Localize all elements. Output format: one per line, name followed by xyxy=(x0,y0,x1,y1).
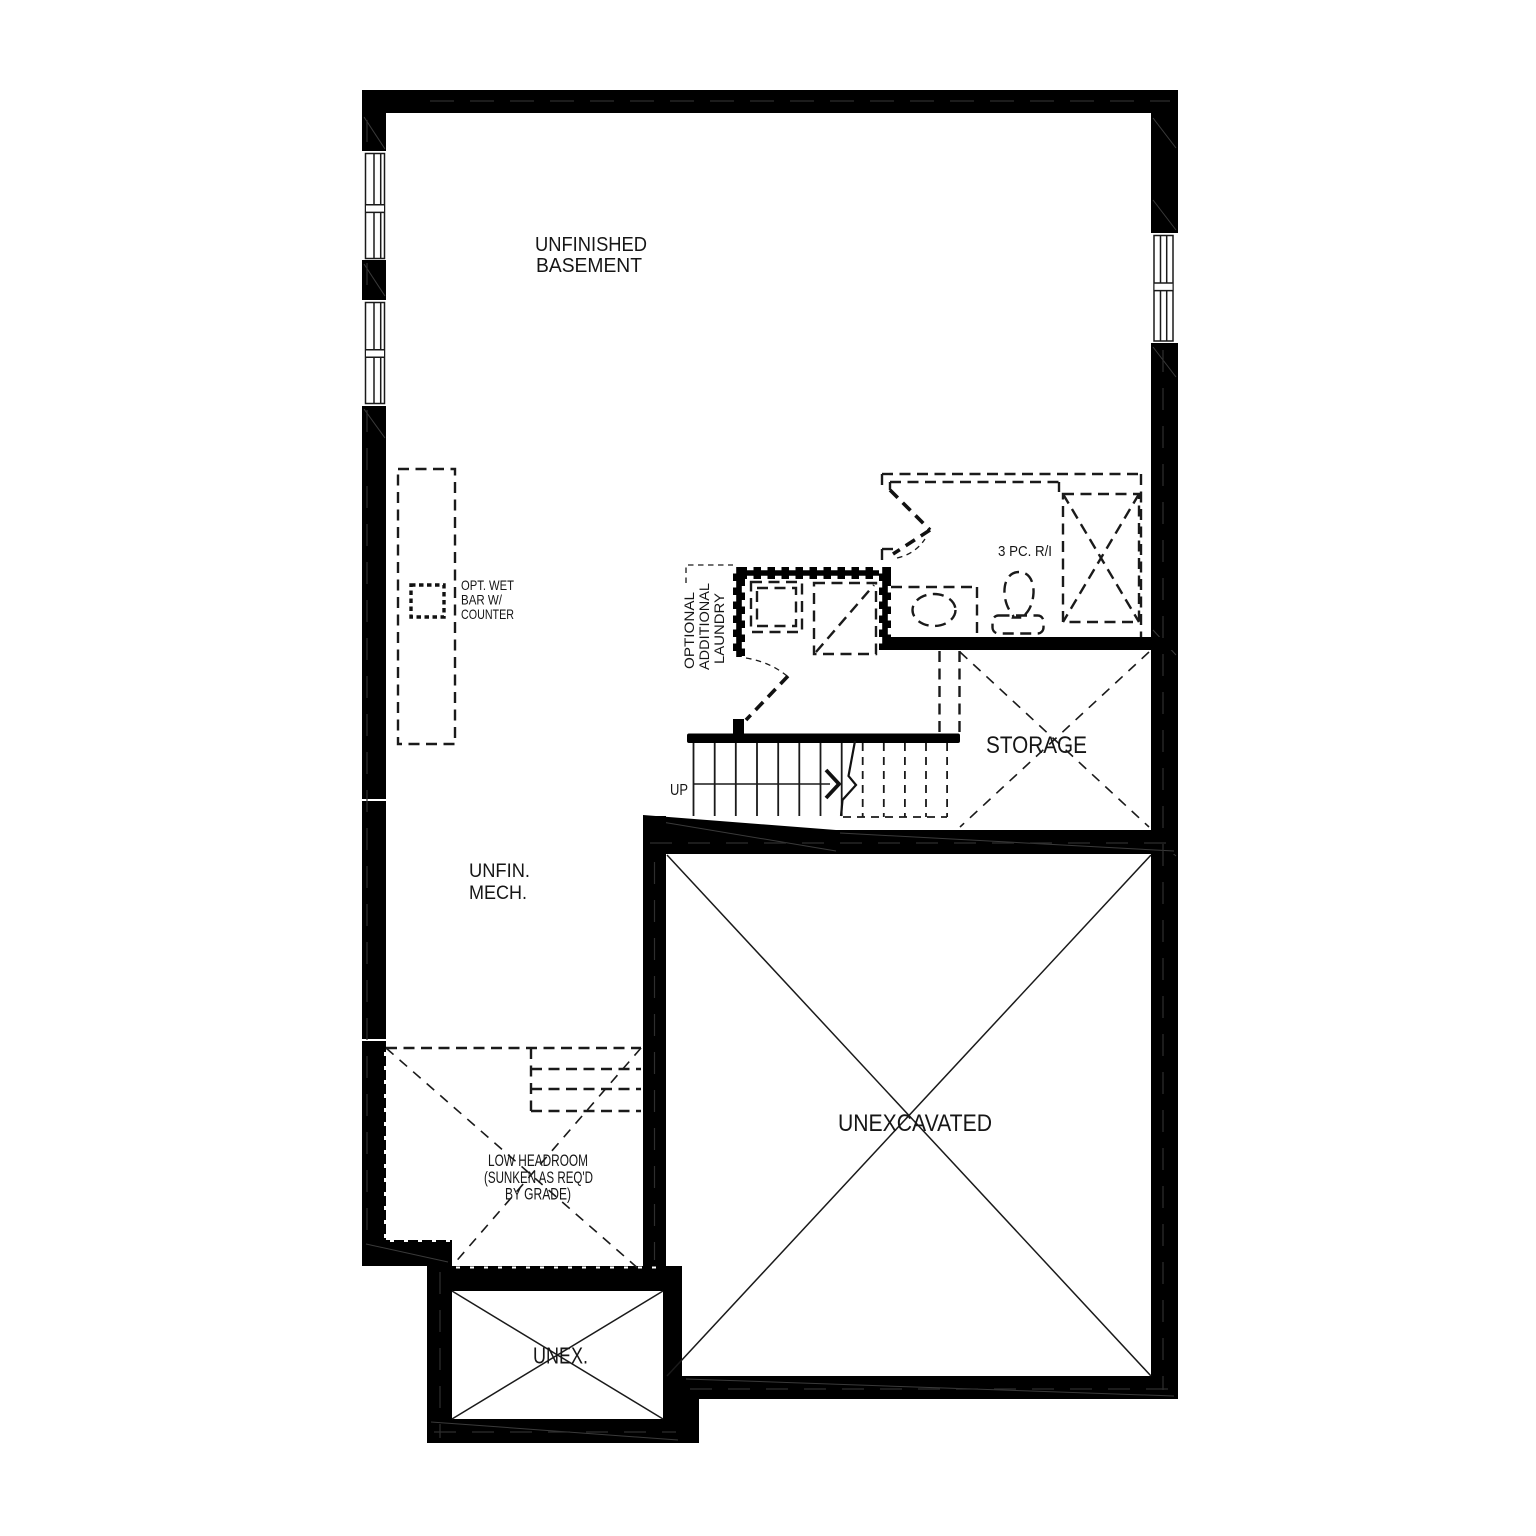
svg-text:UP: UP xyxy=(670,782,688,799)
svg-text:MECH.: MECH. xyxy=(469,883,527,904)
svg-text:(SUNKEN AS REQ'D: (SUNKEN AS REQ'D xyxy=(484,1169,593,1187)
svg-text:OPTIONAL: OPTIONAL xyxy=(681,592,697,669)
svg-text:UNFINISHED: UNFINISHED xyxy=(535,233,647,256)
svg-text:BY GRADE): BY GRADE) xyxy=(505,1186,571,1204)
svg-text:STORAGE: STORAGE xyxy=(986,732,1087,759)
svg-text:LOW HEADROOM: LOW HEADROOM xyxy=(488,1152,588,1170)
svg-text:UNFIN.: UNFIN. xyxy=(469,861,530,882)
svg-text:UNEX.: UNEX. xyxy=(533,1343,588,1369)
svg-text:COUNTER: COUNTER xyxy=(461,606,514,622)
svg-text:BASEMENT: BASEMENT xyxy=(536,254,642,277)
svg-text:LAUNDRY: LAUNDRY xyxy=(711,592,727,664)
svg-text:UNEXCAVATED: UNEXCAVATED xyxy=(838,1110,992,1137)
svg-text:3 PC. R/I: 3 PC. R/I xyxy=(998,544,1052,560)
svg-text:ADDITIONAL: ADDITIONAL xyxy=(696,583,712,670)
